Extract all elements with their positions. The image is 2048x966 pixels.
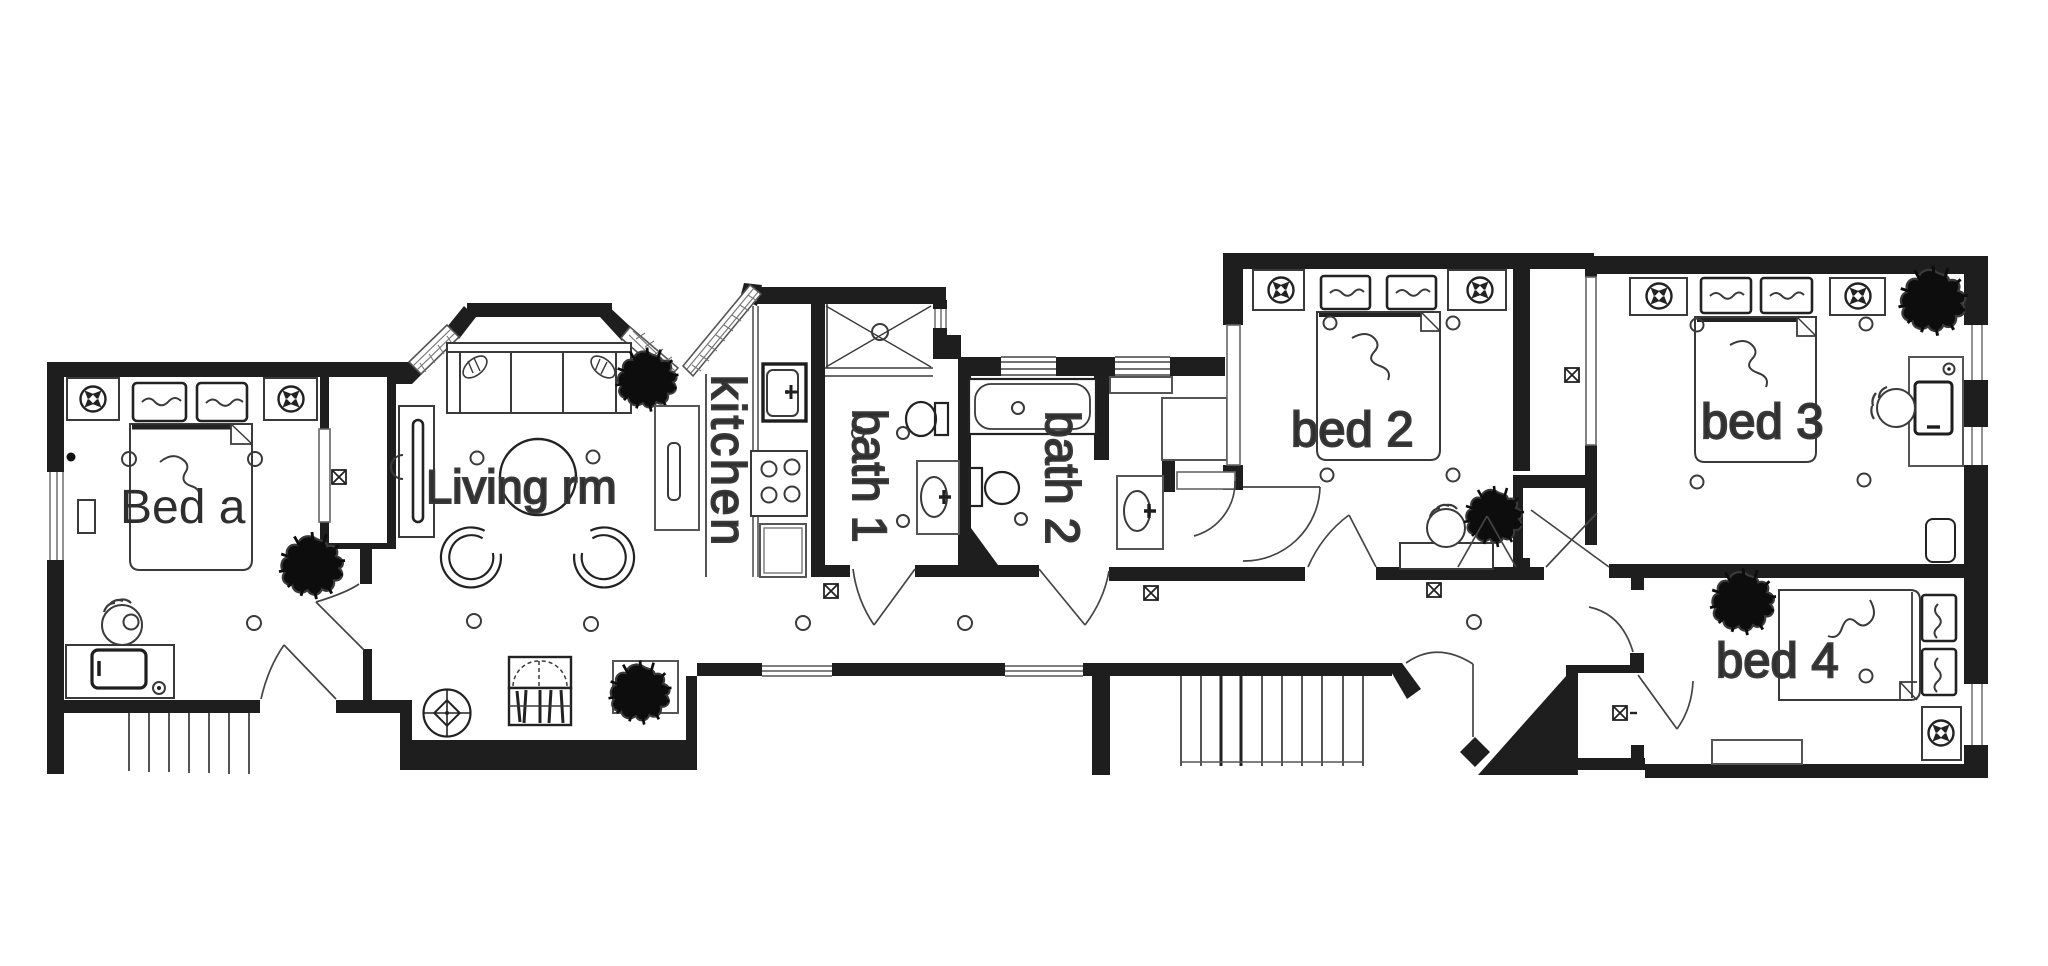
svg-text:Bed a: Bed a (120, 481, 246, 534)
svg-text:bath 1: bath 1 (842, 409, 895, 542)
svg-text:bed 2: bed 2 (1291, 403, 1414, 457)
svg-text:bath 2: bath 2 (1035, 411, 1088, 544)
svg-text:bed 4: bed 4 (1716, 634, 1839, 688)
svg-text:bed 3: bed 3 (1701, 395, 1824, 449)
svg-text:kitchen: kitchen (701, 375, 754, 548)
svg-text:Living rm: Living rm (426, 460, 617, 513)
